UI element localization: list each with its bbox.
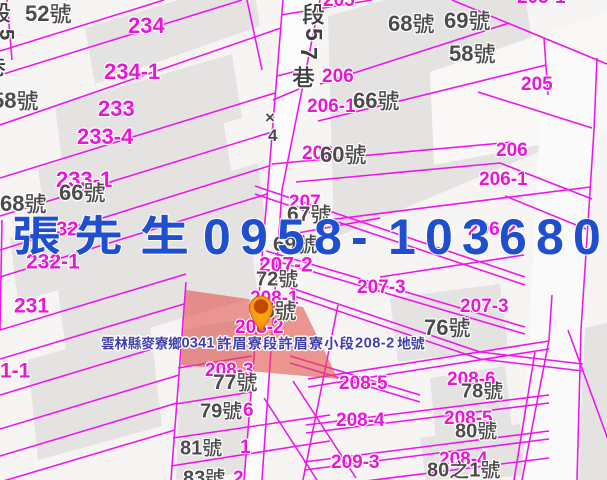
svg-text:66: 66 xyxy=(353,88,377,113)
svg-text:83: 83 xyxy=(183,467,205,480)
svg-text:0: 0 xyxy=(203,209,231,265)
svg-text:207-3: 207-3 xyxy=(460,296,509,317)
svg-text:81: 81 xyxy=(180,437,202,459)
svg-text:0341: 0341 xyxy=(182,336,215,352)
svg-text:5: 5 xyxy=(277,209,305,265)
svg-text:1: 1 xyxy=(388,209,416,265)
svg-text:76: 76 xyxy=(424,315,448,340)
svg-text:234-1: 234-1 xyxy=(104,59,160,84)
svg-text:69: 69 xyxy=(444,8,468,33)
svg-text:-: - xyxy=(351,209,368,265)
svg-text:234: 234 xyxy=(128,13,165,38)
svg-text:×: × xyxy=(265,108,275,127)
svg-text:72: 72 xyxy=(256,268,278,290)
svg-text:7: 7 xyxy=(296,47,322,60)
svg-text:58: 58 xyxy=(449,41,473,66)
svg-text:206-1: 206-1 xyxy=(307,96,356,117)
svg-text:77: 77 xyxy=(213,371,236,394)
svg-text:233-4: 233-4 xyxy=(77,124,134,149)
svg-text:58: 58 xyxy=(0,88,16,113)
svg-text:206: 206 xyxy=(496,140,528,161)
svg-text:206-1: 206-1 xyxy=(479,169,528,190)
svg-text:60: 60 xyxy=(320,142,344,167)
svg-text:79: 79 xyxy=(200,400,222,422)
svg-text:2: 2 xyxy=(233,468,244,480)
svg-text:80: 80 xyxy=(427,459,449,480)
svg-text:5: 5 xyxy=(0,29,17,40)
svg-text:205: 205 xyxy=(323,0,355,11)
svg-text:66: 66 xyxy=(59,180,83,205)
svg-text:208-4: 208-4 xyxy=(336,410,385,431)
svg-text:8: 8 xyxy=(536,209,564,265)
svg-text:9: 9 xyxy=(240,209,268,265)
svg-text:207-3: 207-3 xyxy=(357,277,406,298)
svg-text:3: 3 xyxy=(462,209,490,265)
svg-text:8: 8 xyxy=(314,209,342,265)
svg-text:1: 1 xyxy=(240,437,251,458)
svg-text:4: 4 xyxy=(268,126,278,145)
svg-text:6: 6 xyxy=(499,209,527,265)
svg-text:5: 5 xyxy=(301,28,327,41)
svg-text:0: 0 xyxy=(573,209,601,265)
svg-text:80: 80 xyxy=(455,420,477,442)
svg-text:205-1: 205-1 xyxy=(517,0,566,8)
svg-text:208-2: 208-2 xyxy=(355,336,395,352)
svg-text:52: 52 xyxy=(25,1,49,26)
svg-text:209-3: 209-3 xyxy=(331,452,380,473)
svg-text:6: 6 xyxy=(243,400,254,421)
svg-text:0: 0 xyxy=(425,209,453,265)
svg-text:68: 68 xyxy=(0,191,24,216)
svg-text:206: 206 xyxy=(322,66,354,87)
svg-text:1-1: 1-1 xyxy=(0,359,31,382)
svg-text:68: 68 xyxy=(388,11,412,36)
svg-text:205: 205 xyxy=(521,74,553,95)
svg-text:1: 1 xyxy=(469,459,480,480)
svg-text:231: 231 xyxy=(14,294,49,317)
svg-text:233: 233 xyxy=(98,96,135,121)
svg-text:78: 78 xyxy=(461,380,483,402)
svg-text:208-5: 208-5 xyxy=(339,373,388,394)
